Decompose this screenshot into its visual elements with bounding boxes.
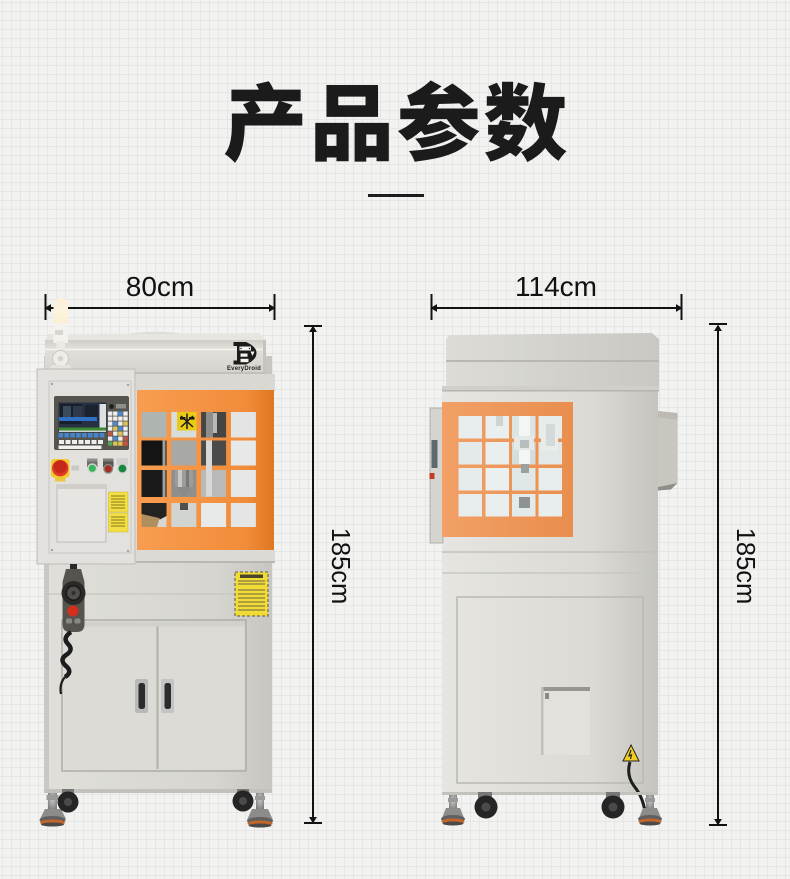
svg-text:80cm: 80cm <box>126 271 194 302</box>
svg-text:EveryDroid: EveryDroid <box>227 366 261 372</box>
svg-text:185cm: 185cm <box>326 528 354 605</box>
svg-text:185cm: 185cm <box>731 528 759 605</box>
svg-text:114cm: 114cm <box>515 271 597 302</box>
